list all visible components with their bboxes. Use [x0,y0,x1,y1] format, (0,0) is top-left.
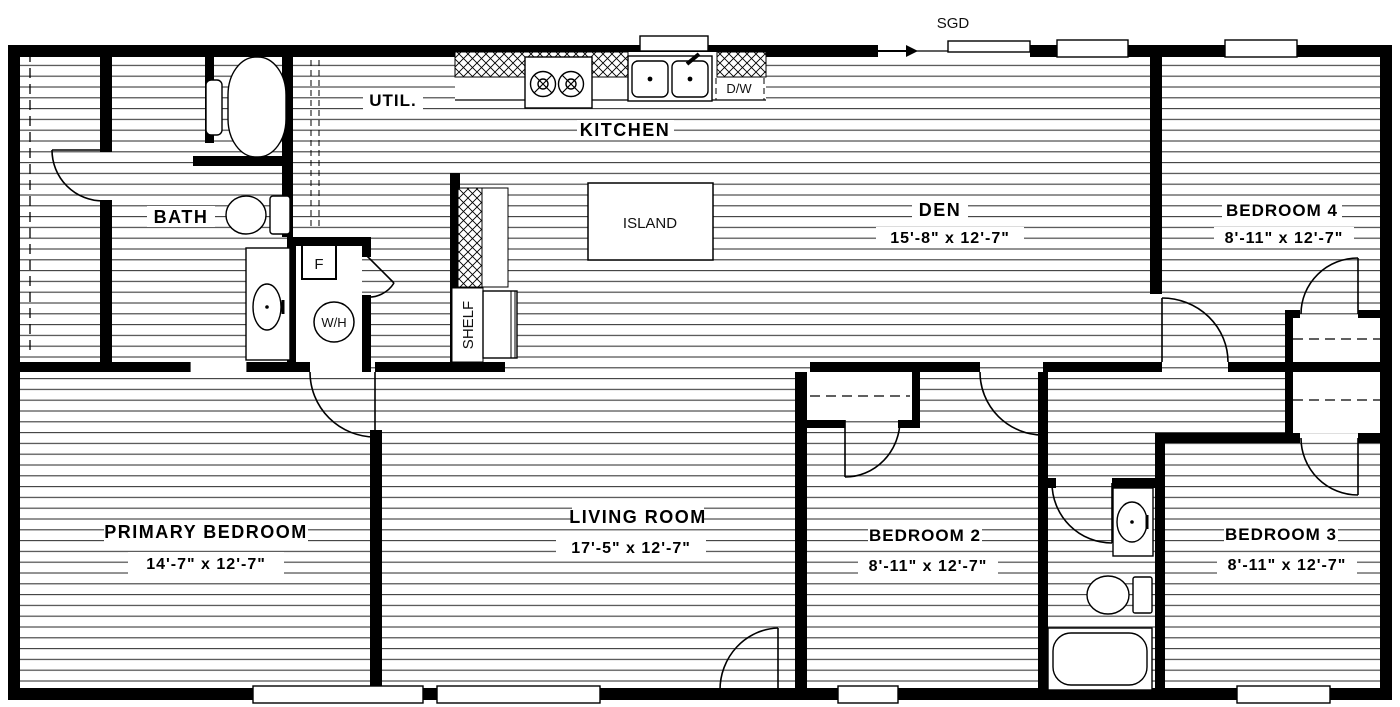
primary-window-2 [437,686,600,703]
bedroom3-dims: 8'-11" x 12'-7" [1228,557,1347,574]
util-label: UTIL. [369,91,417,110]
den-window [1057,40,1128,57]
toilet-2 [1087,576,1152,614]
bedroom3-window [1237,686,1330,703]
bedroom3-label: BEDROOM 3 [1225,525,1337,544]
kitchen-label: KITCHEN [580,120,671,140]
primary-suite-opening [190,362,247,372]
refrigerator [483,291,517,358]
living-room-dims: 17'-5" x 12'-7" [571,540,691,557]
bath-label: BATH [154,207,209,227]
bedroom4-closet-interior [1293,318,1380,362]
dishwasher-label: D/W [726,81,752,96]
shelf-label: SHELF [460,301,477,349]
primary-bedroom-label: PRIMARY BEDROOM [104,522,308,542]
kitchen-window [640,36,708,51]
kitchen-sink [628,54,712,101]
sgd-label: SGD [937,15,970,32]
floor-plan-svg: D/W SHELF ISLAND [0,0,1400,707]
water-heater-label: W/H [321,315,346,330]
bedroom4-window [1225,40,1297,57]
living-room-label: LIVING ROOM [569,507,707,527]
wood-floor [13,50,1387,695]
kitchen-counter-hatch-2 [717,52,766,77]
den-label: DEN [919,200,962,220]
bedroom3-closet-interior [1293,372,1380,433]
left-counter [482,188,508,287]
floor-plan: D/W SHELF ISLAND [0,0,1400,707]
primary-bedroom-dims: 14'-7" x 12'-7" [146,556,266,573]
den-dims: 15'-8" x 12'-7" [890,230,1010,247]
bedroom2-label: BEDROOM 2 [869,526,981,545]
bedroom4-dims: 8'-11" x 12'-7" [1225,230,1344,247]
bedroom2-window [838,686,898,703]
bedroom4-label: BEDROOM 4 [1226,201,1338,220]
bedroom2-dims: 8'-11" x 12'-7" [869,558,988,575]
primary-window-1 [253,686,423,703]
vanity-2 [1113,488,1153,556]
toilet-1 [226,196,290,234]
range [525,57,592,108]
left-counter-hatch [458,188,482,287]
bathtub-2 [1048,628,1152,690]
freezer-label: F [314,256,323,273]
vanity-1 [246,248,290,360]
island-label: ISLAND [623,215,677,232]
